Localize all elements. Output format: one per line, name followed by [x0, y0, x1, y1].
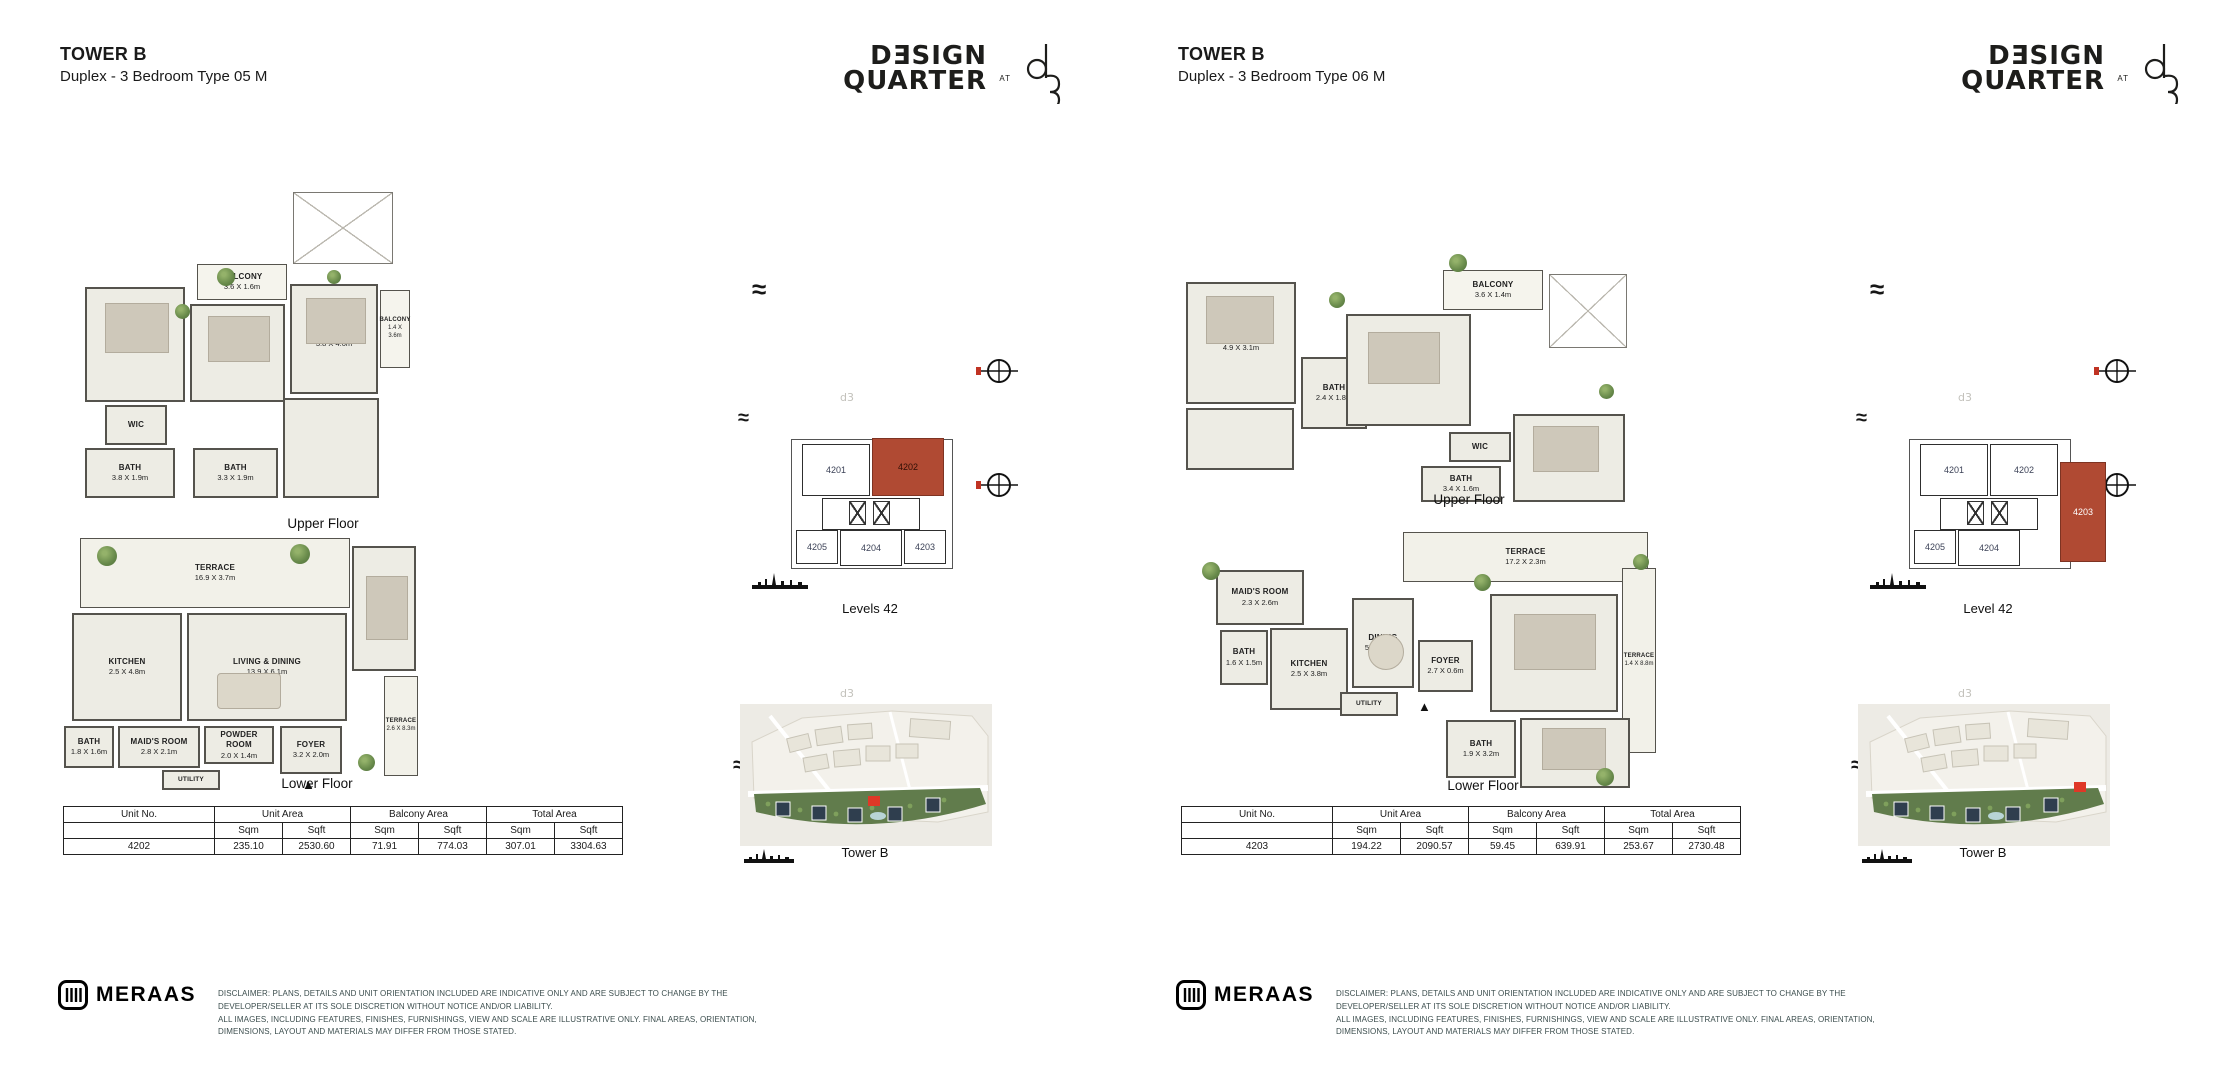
room-bedroom-2: BEDROOM 4.3 X 3.3m: [190, 304, 285, 402]
room-label: BATH: [224, 463, 246, 473]
key-plan-caption: Levels 42: [800, 601, 940, 616]
room-label: WIC: [128, 420, 144, 430]
col-sqft: Sqft: [283, 823, 351, 839]
skyline-icon: [744, 848, 794, 868]
cell-balcony-sqm: 71.91: [351, 839, 419, 855]
room-foyer: FOYER 2.7 X 0.6m: [1418, 640, 1473, 692]
tree-icon: [358, 754, 375, 771]
bed-furniture: [306, 298, 366, 344]
room-wic: WIC: [105, 405, 167, 445]
col-total-area: Total Area: [487, 807, 623, 823]
logo-at: AT: [999, 74, 1011, 83]
room-bedroom-1: BEDROOM 3.8 X 4.7m: [85, 287, 185, 402]
key-unit-4202-highlighted: 4202: [872, 438, 944, 496]
room-dim: 1.4 X 8.8m: [1624, 661, 1653, 669]
bed-furniture: [1533, 426, 1599, 472]
room-balcony: BALCONY 3.6 X 1.6m: [197, 264, 287, 300]
room-balcony: BALCONY 3.6 X 1.4m: [1443, 270, 1543, 310]
room-bath-lower: BATH 1.9 X 3.2m: [1446, 720, 1516, 778]
stair-void: [293, 192, 393, 264]
col-sqm: Sqm: [1605, 823, 1673, 839]
meraas-wordmark: MERAAS: [96, 983, 196, 1007]
room-living-dining: LIVING & DINING 13.9 X 6.1m: [187, 613, 347, 721]
table-row: 4203 194.22 2090.57 59.45 639.91 253.67 …: [1182, 839, 1741, 855]
room-label: TERRACE: [195, 563, 235, 573]
tree-icon: [327, 270, 341, 284]
room-kitchen: KITCHEN 2.5 X 3.8m: [1270, 628, 1348, 710]
tree-icon: [1449, 254, 1467, 272]
col-unit-no: Unit No.: [1182, 807, 1333, 823]
bed-furniture: [208, 316, 270, 362]
room-label: TERRACE: [1624, 653, 1654, 661]
tower-highlight-icon: [868, 796, 880, 806]
room-dim: 1.8 X 1.6m: [71, 747, 107, 757]
elevator-icon: [849, 501, 866, 525]
room-terrace-top: TERRACE 16.9 X 3.7m: [80, 538, 350, 608]
room-terrace-top: TERRACE 17.2 X 2.3m: [1403, 532, 1648, 582]
room-dim: 16.9 X 3.7m: [195, 573, 235, 583]
tree-icon: [1329, 292, 1345, 308]
room-label: BATH: [119, 463, 141, 473]
key-plan: 4201 4202 4205 4204 4203: [790, 432, 955, 572]
room-label: FOYER: [297, 740, 326, 750]
logo-line2: QUARTER: [843, 69, 987, 94]
meraas-wordmark: MERAAS: [1214, 983, 1314, 1007]
bed-furniture: [105, 303, 169, 353]
key-unit-4201: 4201: [802, 444, 870, 496]
d3-watermark: d3: [840, 688, 854, 699]
col-sqft: Sqft: [1401, 823, 1469, 839]
design-quarter-logo: DƎSIGN QUARTER AT: [1888, 40, 2203, 115]
stair-void: [1549, 274, 1627, 348]
room-living: LIVING 5.3 X 4.9m: [1346, 314, 1471, 426]
room-label: BATH: [1450, 474, 1472, 484]
room-dim: 4.9 X 3.1m: [1223, 343, 1259, 353]
table-row: Unit No. Unit Area Balcony Area Total Ar…: [1182, 807, 1741, 823]
page-type-06m: TOWER B Duplex - 3 Bedroom Type 06 M DƎS…: [1118, 0, 2220, 1080]
hallway: [283, 398, 379, 498]
key-unit-4204: 4204: [840, 530, 902, 566]
col-sqm: Sqm: [1333, 823, 1401, 839]
room-living: LIVING 6.7 X 4.2m: [1490, 594, 1618, 712]
room-dim: 3.3 X 1.9m: [217, 473, 253, 483]
lower-floor-caption: Lower Floor: [252, 776, 382, 791]
room-maids: MAID'S ROOM 2.8 X 2.1m: [118, 726, 200, 768]
sofa-furniture: [1514, 614, 1596, 670]
table-row: Unit No. Unit Area Balcony Area Total Ar…: [64, 807, 623, 823]
disclaimer-text: DISCLAIMER: PLANS, DETAILS AND UNIT ORIE…: [1336, 988, 1908, 1039]
lower-floor-plan: TERRACE 17.2 X 2.3m MAID'S ROOM 2.3 X 2.…: [1178, 532, 1683, 787]
key-unit-4201: 4201: [1920, 444, 1988, 496]
room-dim: 1.9 X 3.2m: [1463, 749, 1499, 759]
room-wic: WIC: [1449, 432, 1511, 462]
room-label: BALCONY: [379, 317, 410, 325]
logo-line2: QUARTER: [1961, 69, 2105, 94]
room-label: BATH: [1470, 739, 1492, 749]
page-subtitle: Duplex - 3 Bedroom Type 05 M: [60, 68, 267, 85]
d3-monogram-icon: [2137, 42, 2185, 109]
tree-icon: [1202, 562, 1220, 580]
tree-icon: [1474, 574, 1491, 591]
tree-icon: [175, 304, 190, 319]
table-row: 4202 235.10 2530.60 71.91 774.03 307.01 …: [64, 839, 623, 855]
room-dim: 2.0 X 1.4m: [221, 751, 257, 761]
disclaimer-line1: DISCLAIMER: PLANS, DETAILS AND UNIT ORIE…: [1336, 988, 1908, 1014]
d3-watermark: d3: [840, 392, 854, 403]
logo-wordmark: DƎSIGN QUARTER: [1961, 44, 2105, 95]
area-table: Unit No. Unit Area Balcony Area Total Ar…: [1181, 806, 1741, 855]
room-label: FOYER: [1431, 656, 1460, 666]
room-utility: UTILITY: [162, 770, 220, 790]
disclaimer-line2: ALL IMAGES, INCLUDING FEATURES, FINISHES…: [218, 1014, 790, 1040]
key-plan-caption: Level 42: [1918, 601, 2058, 616]
site-map-caption: Tower B: [795, 845, 935, 860]
col-sqft: Sqft: [1537, 823, 1605, 839]
site-map: [740, 704, 992, 846]
room-dim: 3.8 X 1.9m: [112, 473, 148, 483]
wave-icon: ≈: [738, 408, 749, 428]
sofa-furniture: [1368, 332, 1440, 384]
tree-icon: [1633, 554, 1649, 570]
dining-table-furniture: [217, 673, 281, 709]
table-row: Sqm Sqft Sqm Sqft Sqm Sqft: [64, 823, 623, 839]
key-unit-4203: 4203: [904, 530, 946, 564]
cell-total-sqft: 2730.48: [1673, 839, 1741, 855]
room-label: BATH: [1233, 647, 1255, 657]
col-unit-no: Unit No.: [64, 807, 215, 823]
meraas-logo: MERAAS: [1176, 980, 1314, 1010]
room-dim: 1.6 X 1.5m: [1226, 658, 1262, 668]
room-dining: DINING 5.0 X 4.1m: [1352, 598, 1414, 688]
lower-floor-plan: TERRACE 16.9 X 3.7m TERRACE 2.6 X 8.3m K…: [62, 538, 422, 790]
col-sqm: Sqm: [1469, 823, 1537, 839]
key-plan: 4201 4202 4203 4205 4204: [1908, 432, 2073, 572]
skyline-icon: [1862, 848, 1912, 868]
empty-cell: [1182, 823, 1333, 839]
room-label: BATH: [1323, 383, 1345, 393]
room-label: KITCHEN: [1291, 659, 1328, 669]
cell-unit-no: 4203: [1182, 839, 1333, 855]
room-bath-small: BATH 1.6 X 1.5m: [1220, 630, 1268, 685]
room-powder: POWDER ROOM 2.0 X 1.4m: [204, 726, 274, 764]
col-sqm: Sqm: [351, 823, 419, 839]
tree-icon: [290, 544, 310, 564]
page-type-05m: TOWER B Duplex - 3 Bedroom Type 05 M DƎS…: [0, 0, 1110, 1080]
tree-icon: [1599, 384, 1614, 399]
empty-cell: [64, 823, 215, 839]
cell-unit-sqm: 194.22: [1333, 839, 1401, 855]
room-label: TERRACE: [386, 718, 416, 726]
cell-unit-no: 4202: [64, 839, 215, 855]
skyline-icon: [752, 572, 808, 594]
cell-unit-sqm: 235.10: [215, 839, 283, 855]
col-sqm: Sqm: [215, 823, 283, 839]
dining-table-furniture: [1368, 634, 1404, 670]
cell-balcony-sqft: 639.91: [1537, 839, 1605, 855]
meraas-icon: [1176, 980, 1206, 1010]
col-unit-area: Unit Area: [215, 807, 351, 823]
bed-furniture: [1206, 296, 1274, 344]
room-dim: 2.8 X 2.1m: [141, 747, 177, 757]
room-bath-2: BATH 3.3 X 1.9m: [193, 448, 278, 498]
logo-wordmark: DƎSIGN QUARTER: [843, 44, 987, 95]
d3-watermark: d3: [1958, 392, 1972, 403]
room-dim: 2.6 X 8.3m: [386, 726, 415, 734]
disclaimer-line1: DISCLAIMER: PLANS, DETAILS AND UNIT ORIE…: [218, 988, 790, 1014]
hallway: [1186, 408, 1294, 470]
elevator-icon: [1991, 501, 2008, 525]
room-label: KITCHEN: [109, 657, 146, 667]
room-label: LIVING & DINING: [233, 657, 301, 667]
room-bath: BATH 1.8 X 1.6m: [64, 726, 114, 768]
room-label: WIC: [1472, 442, 1488, 452]
room-dim: 3.2 X 2.0m: [293, 750, 329, 760]
cell-balcony-sqm: 59.45: [1469, 839, 1537, 855]
cell-unit-sqft: 2090.57: [1401, 839, 1469, 855]
area-table: Unit No. Unit Area Balcony Area Total Ar…: [63, 806, 623, 855]
cell-total-sqm: 253.67: [1605, 839, 1673, 855]
elevator-icon: [873, 501, 890, 525]
key-plan-core: [1940, 498, 2038, 530]
meraas-icon: [58, 980, 88, 1010]
room-bedroom-1: BEDROOM 4.9 X 3.1m: [1186, 282, 1296, 404]
room-dim: 2.7 X 0.6m: [1427, 666, 1463, 676]
page-title: TOWER B: [60, 44, 147, 65]
col-sqft: Sqft: [1673, 823, 1741, 839]
upper-floor-plan: BALCONY 3.6 X 1.6m BEDROOM 3.8 X 4.7m BE…: [75, 192, 410, 512]
key-unit-4202: 4202: [1990, 444, 2058, 496]
room-dim: 1.4 X 3.6m: [382, 325, 408, 341]
upper-floor-plan: BEDROOM 4.9 X 3.1m BATH 2.4 X 1.8m LIVIN…: [1181, 192, 1631, 502]
tree-icon: [1596, 768, 1614, 786]
room-label: MAID'S ROOM: [1232, 587, 1289, 597]
lower-floor-caption: Lower Floor: [1418, 778, 1548, 793]
room-maids: MAID'S ROOM 2.3 X 2.6m: [1216, 570, 1304, 625]
cell-unit-sqft: 2530.60: [283, 839, 351, 855]
disclaimer-line2: ALL IMAGES, INCLUDING FEATURES, FINISHES…: [1336, 1014, 1908, 1040]
site-map-caption: Tower B: [1913, 845, 2053, 860]
tower-highlight-icon: [2074, 782, 2086, 792]
col-sqm: Sqm: [487, 823, 555, 839]
room-label: POWDER ROOM: [207, 730, 271, 751]
room-foyer: FOYER 3.2 X 2.0m: [280, 726, 342, 774]
key-unit-4205: 4205: [1914, 530, 1956, 564]
d3-watermark: d3: [1958, 688, 1972, 699]
wave-icon: ≈: [1856, 408, 1867, 428]
room-label: TERRACE: [1505, 547, 1545, 557]
meraas-logo: MERAAS: [58, 980, 196, 1010]
living-extension: [352, 546, 416, 671]
sofa-furniture: [366, 576, 408, 640]
room-dim: 2.3 X 2.6m: [1242, 598, 1278, 608]
room-bedroom-3: BEDROOM 3.8 X 4.0m: [290, 284, 378, 394]
entry-marker-icon: ▲: [302, 778, 315, 791]
room-label: MAID'S ROOM: [131, 737, 188, 747]
bed-furniture: [1542, 728, 1606, 770]
logo-at: AT: [2117, 74, 2129, 83]
room-kitchen: KITCHEN 2.5 X 4.8m: [72, 613, 182, 721]
room-utility: UTILITY: [1340, 692, 1398, 716]
col-total-area: Total Area: [1605, 807, 1741, 823]
key-unit-4203-highlighted: 4203: [2060, 462, 2106, 562]
col-balcony-area: Balcony Area: [351, 807, 487, 823]
compass-icon: [976, 356, 1018, 391]
room-balcony-side: BALCONY 1.4 X 3.6m: [380, 290, 410, 368]
room-dim: 2.5 X 4.8m: [109, 667, 145, 677]
upper-floor-caption: Upper Floor: [1404, 492, 1534, 507]
room-bedroom-2: BEDROOM 4.8 X 3.4m: [1513, 414, 1625, 502]
compass-icon: [2094, 356, 2136, 391]
skyline-icon: [1870, 572, 1926, 594]
room-terrace-right: TERRACE 2.6 X 8.3m: [384, 676, 418, 776]
room-bath-1: BATH 3.8 X 1.9m: [85, 448, 175, 498]
key-plan-core: [822, 498, 920, 530]
col-balcony-area: Balcony Area: [1469, 807, 1605, 823]
cell-total-sqm: 307.01: [487, 839, 555, 855]
col-sqft: Sqft: [555, 823, 623, 839]
key-unit-4204: 4204: [1958, 530, 2020, 566]
compass-icon: [976, 470, 1018, 505]
table-row: Sqm Sqft Sqm Sqft Sqm Sqft: [1182, 823, 1741, 839]
wave-icon: ≈: [1870, 276, 1884, 302]
room-label: BATH: [78, 737, 100, 747]
room-label: BALCONY: [1473, 280, 1514, 290]
room-label: UTILITY: [1356, 700, 1382, 708]
room-label: UTILITY: [178, 776, 204, 784]
room-dim: 3.6 X 1.4m: [1475, 290, 1511, 300]
design-quarter-logo: DƎSIGN QUARTER AT: [770, 40, 1085, 115]
upper-floor-caption: Upper Floor: [258, 516, 388, 531]
tree-icon: [97, 546, 117, 566]
room-dim: 2.5 X 3.8m: [1291, 669, 1327, 679]
page-title: TOWER B: [1178, 44, 1265, 65]
tree-icon: [217, 268, 235, 286]
site-map: [1858, 704, 2110, 846]
page-subtitle: Duplex - 3 Bedroom Type 06 M: [1178, 68, 1385, 85]
cell-total-sqft: 3304.63: [555, 839, 623, 855]
disclaimer-text: DISCLAIMER: PLANS, DETAILS AND UNIT ORIE…: [218, 988, 790, 1039]
col-unit-area: Unit Area: [1333, 807, 1469, 823]
key-unit-4205: 4205: [796, 530, 838, 564]
wave-icon: ≈: [752, 276, 766, 302]
col-sqft: Sqft: [419, 823, 487, 839]
entry-marker-icon: ▲: [1418, 700, 1431, 713]
cell-balcony-sqft: 774.03: [419, 839, 487, 855]
elevator-icon: [1967, 501, 1984, 525]
room-dim: 17.2 X 2.3m: [1505, 557, 1545, 567]
d3-monogram-icon: [1019, 42, 1067, 109]
